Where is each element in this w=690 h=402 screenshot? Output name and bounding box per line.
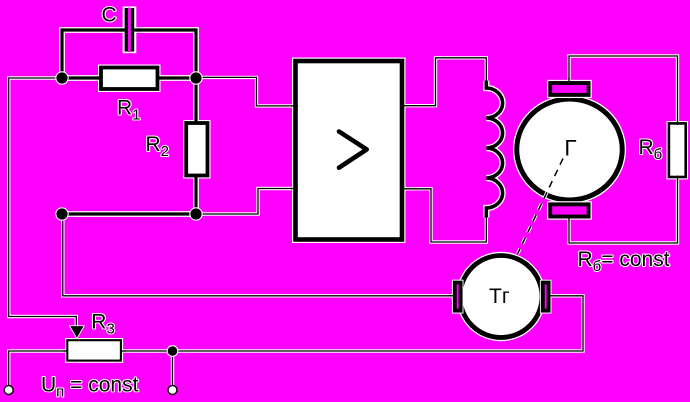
svg-text:Г: Г (564, 136, 576, 161)
svg-text:Rб= const: Rб= const (578, 248, 670, 275)
svg-text:C: C (102, 4, 117, 27)
svg-text:Uп = const: Uп = const (41, 373, 139, 400)
svg-text:Тг: Тг (489, 285, 510, 308)
